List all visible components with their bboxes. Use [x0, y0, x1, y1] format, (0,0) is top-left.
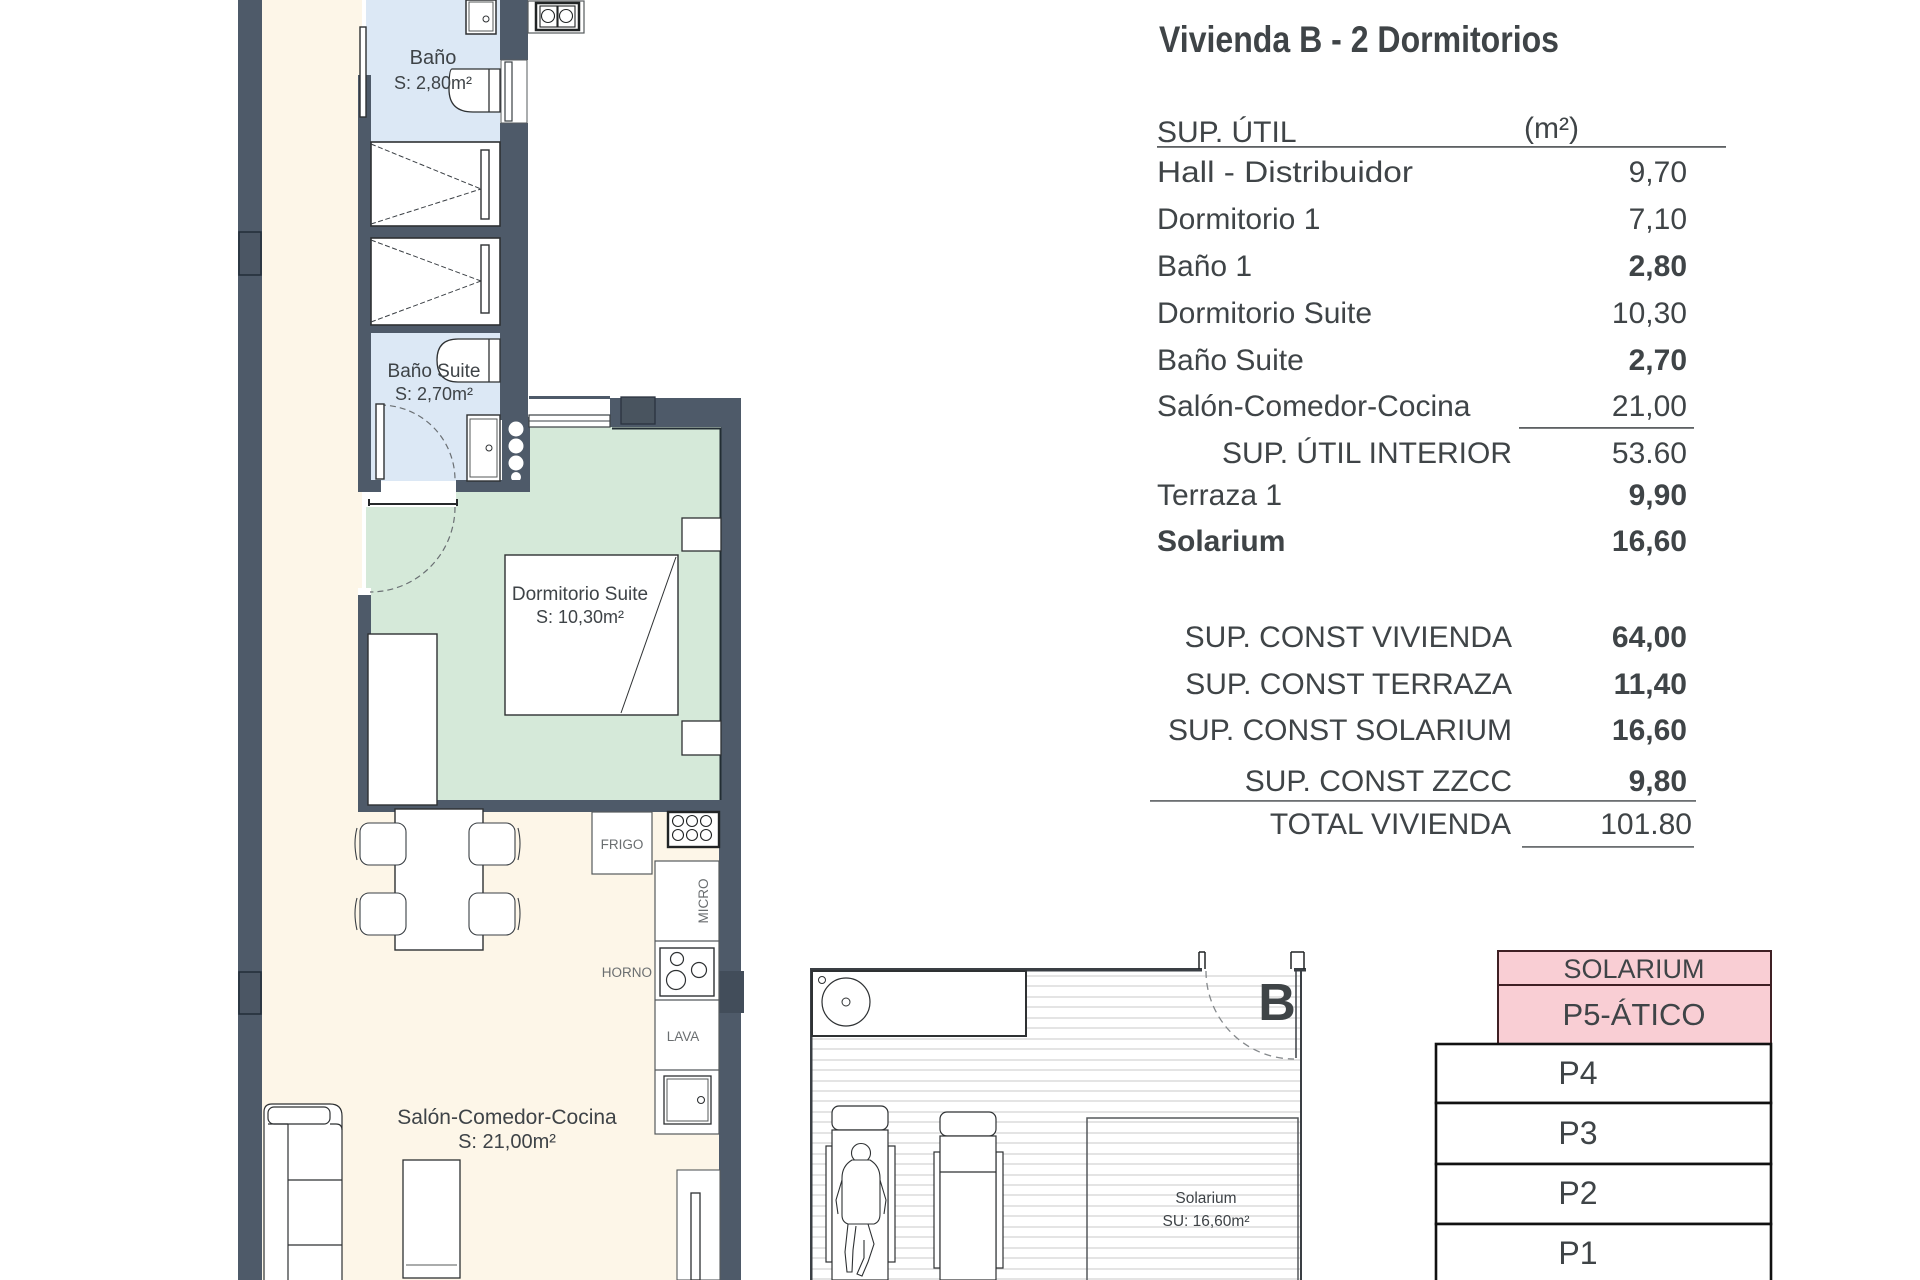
- svg-text:Vivienda B - 2 Dormitorios: Vivienda B - 2 Dormitorios: [1159, 19, 1559, 60]
- svg-text:S: 21,00m²: S: 21,00m²: [458, 1131, 556, 1153]
- svg-text:9,90: 9,90: [1629, 479, 1687, 512]
- svg-text:B: B: [1258, 974, 1296, 1032]
- svg-text:P5-ÁTICO: P5-ÁTICO: [1563, 997, 1706, 1032]
- svg-text:P3: P3: [1558, 1115, 1597, 1151]
- svg-text:HORNO: HORNO: [602, 965, 652, 980]
- svg-text:S: 2,80m²: S: 2,80m²: [394, 73, 472, 93]
- svg-text:P1: P1: [1558, 1235, 1597, 1271]
- svg-text:SUP. CONST SOLARIUM: SUP. CONST SOLARIUM: [1168, 714, 1512, 747]
- svg-text:2,70: 2,70: [1629, 344, 1687, 377]
- svg-text:Solarium: Solarium: [1157, 525, 1285, 558]
- svg-text:LAVA: LAVA: [667, 1029, 700, 1044]
- svg-text:Solarium: Solarium: [1175, 1190, 1236, 1207]
- svg-text:Hall - Distribuidor: Hall - Distribuidor: [1157, 156, 1413, 189]
- svg-text:53.60: 53.60: [1612, 437, 1687, 470]
- svg-text:P2: P2: [1558, 1175, 1597, 1211]
- svg-text:10,30: 10,30: [1612, 297, 1687, 330]
- svg-text:SU: 16,60m²: SU: 16,60m²: [1162, 1213, 1249, 1230]
- svg-text:Salón-Comedor-Cocina: Salón-Comedor-Cocina: [1157, 390, 1471, 423]
- svg-text:S: 10,30m²: S: 10,30m²: [536, 607, 624, 627]
- svg-text:Baño 1: Baño 1: [1157, 250, 1252, 283]
- svg-text:Baño Suite: Baño Suite: [1157, 344, 1304, 377]
- svg-text:TOTAL VIVIENDA: TOTAL VIVIENDA: [1270, 808, 1511, 841]
- svg-text:7,10: 7,10: [1629, 203, 1687, 236]
- svg-text:Terraza 1: Terraza 1: [1157, 479, 1282, 512]
- svg-text:16,60: 16,60: [1612, 525, 1687, 558]
- svg-text:Salón-Comedor-Cocina: Salón-Comedor-Cocina: [397, 1106, 617, 1129]
- svg-text:SUP. CONST ZZCC: SUP. CONST ZZCC: [1245, 765, 1512, 798]
- svg-text:Dormitorio 1: Dormitorio 1: [1157, 203, 1320, 236]
- svg-text:S: 2,70m²: S: 2,70m²: [395, 384, 473, 404]
- svg-text:FRIGO: FRIGO: [601, 837, 644, 852]
- svg-text:Baño Suite: Baño Suite: [388, 361, 481, 382]
- svg-text:9,70: 9,70: [1629, 156, 1687, 189]
- svg-text:SUP. CONST VIVIENDA: SUP. CONST VIVIENDA: [1185, 621, 1512, 654]
- svg-text:Dormitorio Suite: Dormitorio Suite: [512, 584, 648, 605]
- svg-text:21,00: 21,00: [1612, 390, 1687, 423]
- svg-text:Baño: Baño: [410, 47, 457, 69]
- svg-text:SOLARIUM: SOLARIUM: [1563, 954, 1704, 984]
- svg-text:Dormitorio Suite: Dormitorio Suite: [1157, 297, 1372, 330]
- svg-text:SUP. ÚTIL: SUP. ÚTIL: [1157, 116, 1297, 149]
- svg-text:9,80: 9,80: [1629, 765, 1687, 798]
- svg-text:(m²): (m²): [1524, 112, 1579, 145]
- svg-text:P4: P4: [1558, 1055, 1597, 1091]
- svg-text:SUP. ÚTIL INTERIOR: SUP. ÚTIL INTERIOR: [1222, 437, 1512, 470]
- svg-text:2,80: 2,80: [1629, 250, 1687, 283]
- svg-text:MICRO: MICRO: [696, 879, 711, 924]
- svg-text:16,60: 16,60: [1612, 714, 1687, 747]
- svg-text:SUP. CONST TERRAZA: SUP. CONST TERRAZA: [1185, 668, 1512, 701]
- svg-text:11,40: 11,40: [1614, 668, 1687, 701]
- svg-text:101.80: 101.80: [1600, 808, 1692, 841]
- svg-text:64,00: 64,00: [1612, 621, 1687, 654]
